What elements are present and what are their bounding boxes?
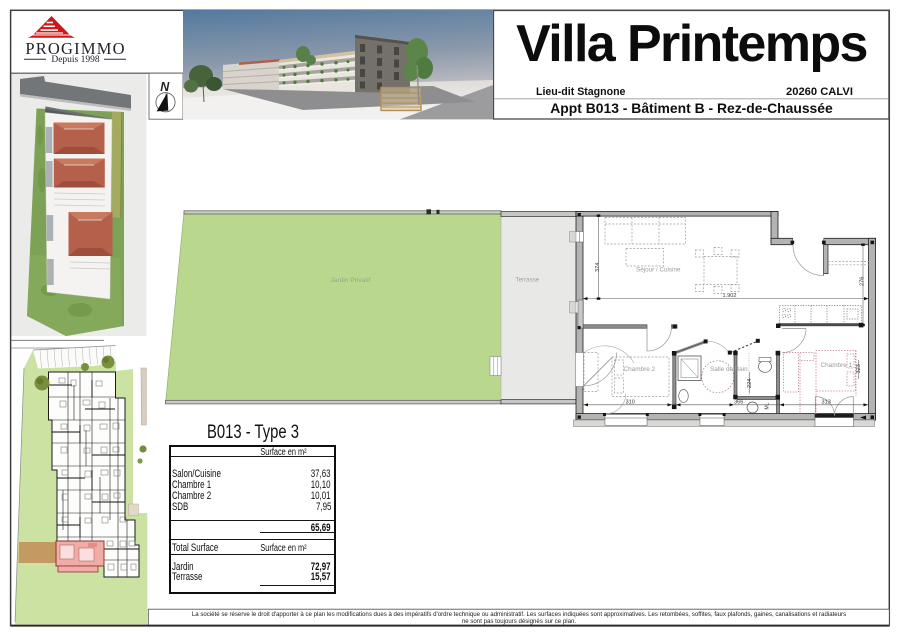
svg-text:Chambre 2: Chambre 2 [624,366,656,373]
svg-text:313: 313 [822,400,831,406]
svg-text:N: N [160,80,170,94]
svg-text:Terrasse: Terrasse [516,277,540,284]
svg-text:323: 323 [856,364,862,373]
svg-text:276: 276 [860,277,866,286]
svg-text:1.902: 1.902 [723,293,737,299]
svg-text:ML: ML [765,402,771,409]
svg-text:366: 366 [734,400,743,406]
svg-text:Salle de Bain: Salle de Bain [710,366,748,373]
svg-text:Chambre 1: Chambre 1 [821,362,853,369]
svg-text:310: 310 [626,400,635,406]
svg-text:Jardin Privatif: Jardin Privatif [331,277,371,284]
svg-text:224: 224 [747,379,753,388]
svg-text:Séjour / Cuisine: Séjour / Cuisine [636,267,681,274]
svg-text:374: 374 [595,263,601,272]
